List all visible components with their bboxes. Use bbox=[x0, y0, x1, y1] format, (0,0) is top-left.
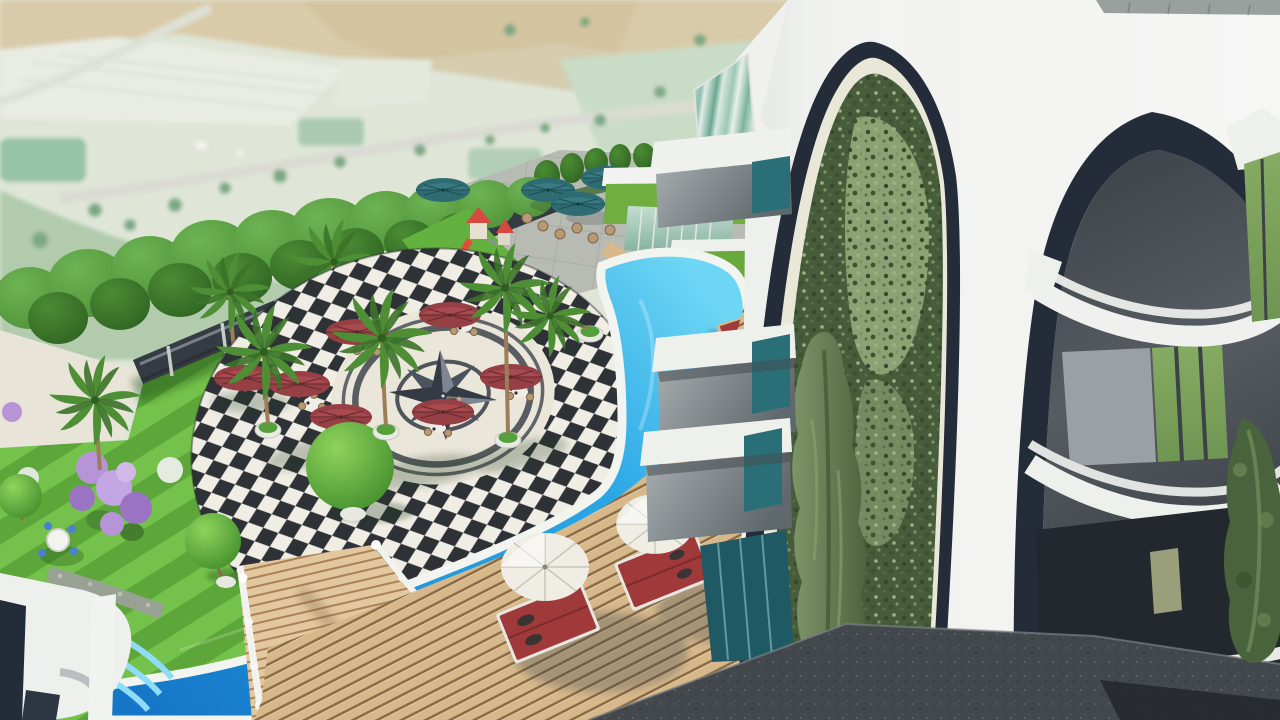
glass-panel bbox=[0, 600, 26, 720]
green-window bbox=[1152, 344, 1228, 462]
residential-building bbox=[640, 0, 1280, 720]
greenhouse-field bbox=[334, 58, 432, 106]
teal-umbrella bbox=[551, 192, 605, 216]
teal-glass-panel bbox=[752, 156, 790, 214]
roof-paving bbox=[1096, 0, 1280, 15]
garden-table bbox=[47, 529, 69, 551]
lit-window bbox=[1150, 548, 1182, 614]
white-flower-bush bbox=[157, 457, 183, 483]
corner-terrace-structure bbox=[0, 573, 131, 720]
ground-glass-facade bbox=[700, 530, 794, 662]
architectural-render bbox=[0, 0, 1280, 720]
render-canvas bbox=[0, 0, 1280, 720]
farm-plot bbox=[0, 138, 86, 182]
balcony-floor bbox=[1062, 348, 1156, 466]
pool-surround bbox=[88, 594, 116, 720]
white-umbrella bbox=[501, 533, 589, 601]
glass-panel bbox=[22, 690, 60, 720]
teal-umbrella bbox=[416, 178, 470, 202]
teal-glass-panel bbox=[744, 428, 782, 512]
teal-glass-panel bbox=[752, 334, 790, 414]
